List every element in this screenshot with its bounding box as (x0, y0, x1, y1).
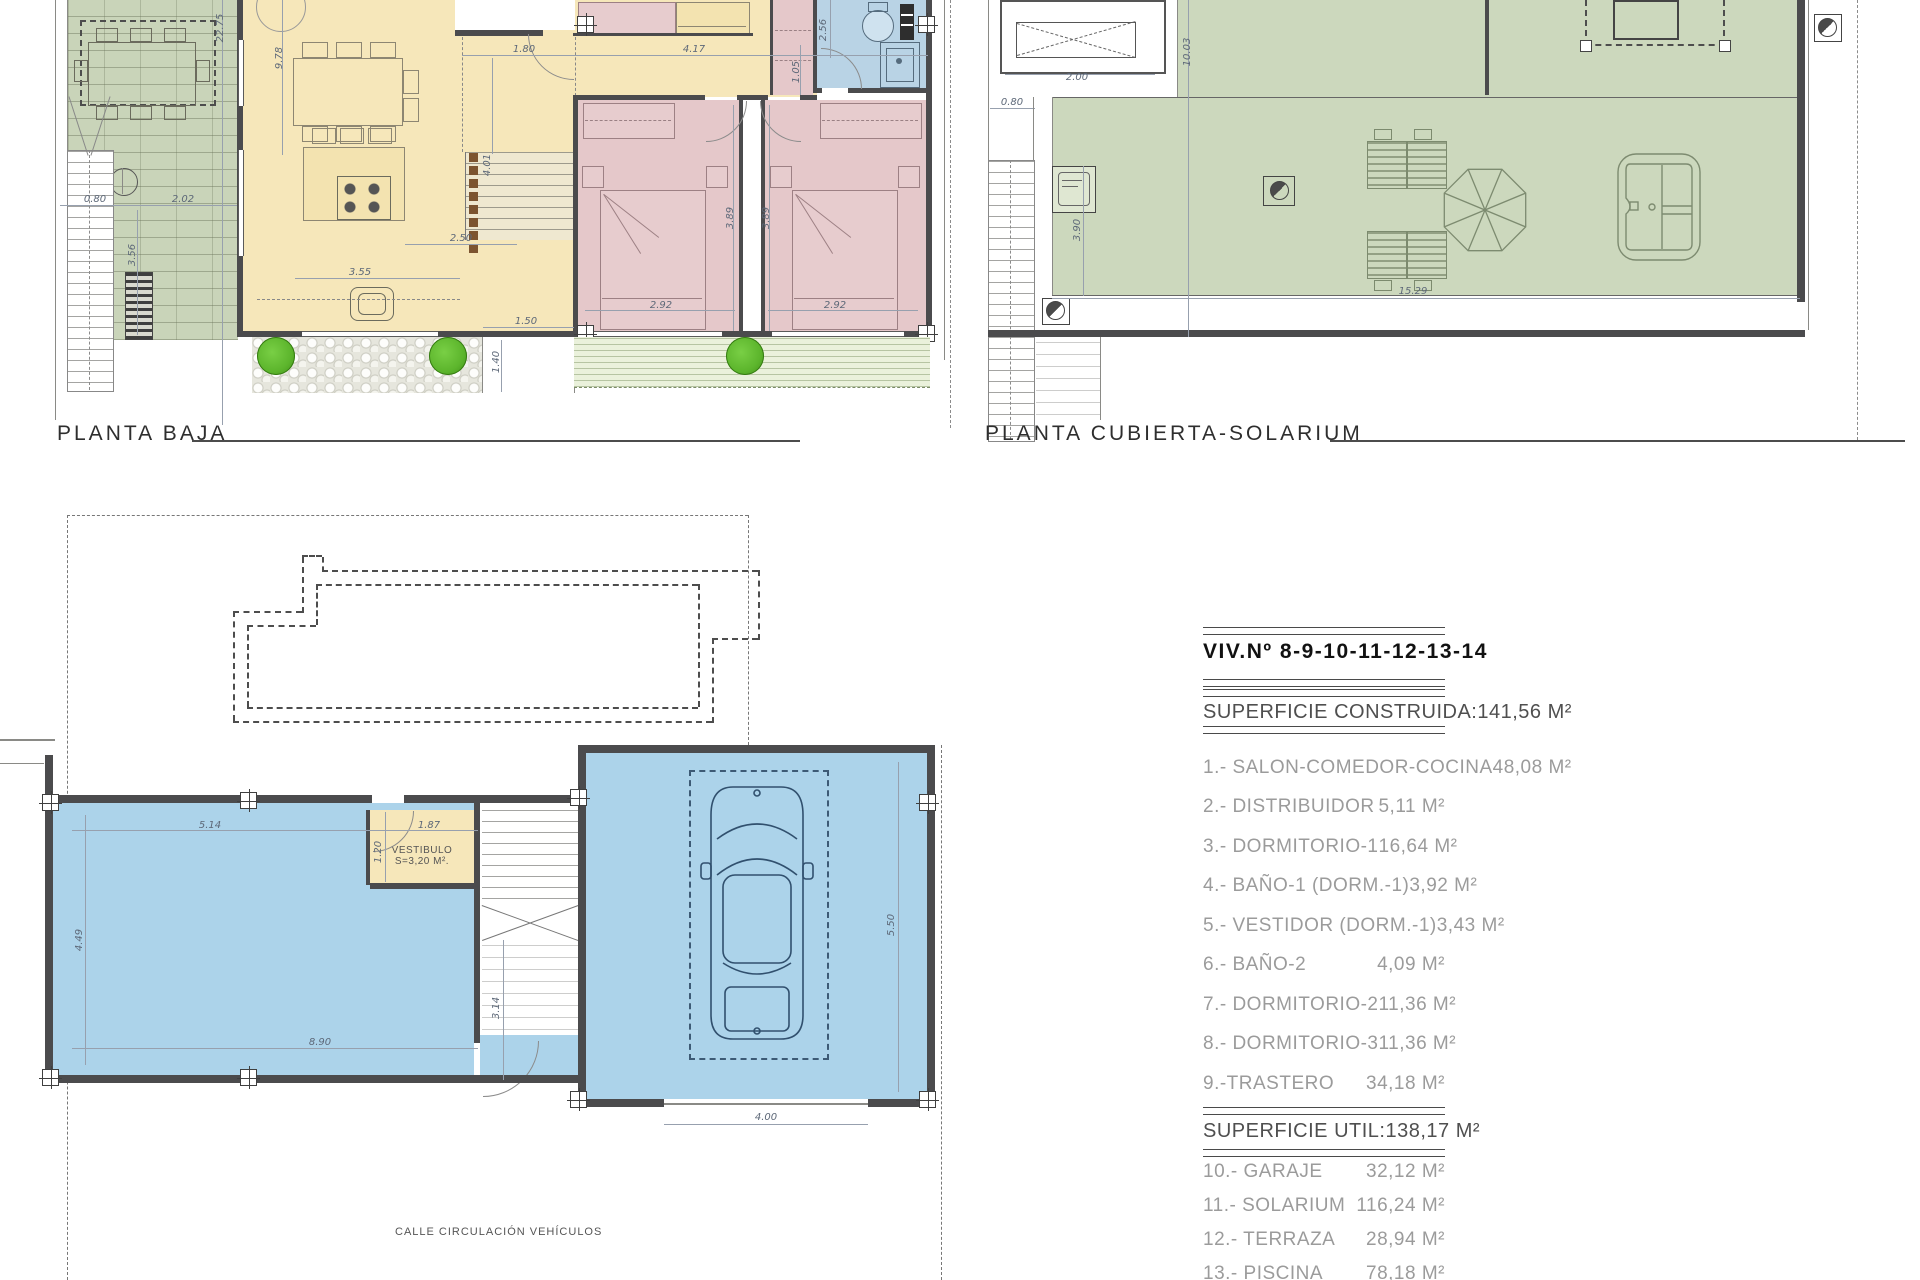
drawing-element (130, 28, 152, 42)
drawing-element (739, 100, 743, 331)
drawing-element (944, 0, 945, 360)
drawing-element (130, 106, 152, 120)
dimension-label: 15.29 (1399, 287, 1428, 297)
drawing-element (368, 128, 392, 144)
table-row: 13.- PISCINA78,18 M² (1203, 1257, 1445, 1280)
dimension-label: 0.80 (1001, 98, 1023, 108)
drawing-element (316, 584, 318, 625)
table-row: 3.- DORMITORIO-116,64 M² (1203, 827, 1445, 867)
drawing-element (1052, 298, 1800, 299)
drawing-element (582, 166, 604, 188)
drawing-element (678, 26, 746, 27)
drawing-element (1485, 0, 1489, 95)
drawing-element: 7.- DORMITORIO-2 (1203, 994, 1379, 1016)
drawing-element (1203, 689, 1445, 697)
toilet-icon (862, 10, 894, 42)
table-row: 6.- BAÑO-24,09 M² (1203, 946, 1445, 986)
drawing-element (164, 106, 186, 120)
drawing-element (723, 963, 791, 974)
drawing-element (898, 166, 920, 188)
drawing-element (503, 940, 504, 1080)
drawing-element (706, 166, 728, 188)
drawing-element (1580, 40, 1592, 52)
drawing-element (886, 48, 914, 82)
drawing-element (302, 42, 328, 58)
sun-lounger (1367, 141, 1407, 189)
car-icon (697, 779, 817, 1047)
drawing-element (366, 810, 370, 885)
drawing-element: 78,18 M² (1366, 1263, 1445, 1280)
drawing-element (1626, 164, 1692, 250)
stove-icon (337, 176, 391, 220)
drawing-element: 5.- VESTIDOR (DORM.-1) (1203, 915, 1437, 937)
drawing-element (469, 179, 478, 188)
plan-label-planta-baja: PLANTA BAJA (57, 422, 227, 446)
drawing-element: 9.-TRASTERO (1203, 1073, 1334, 1095)
drawing-element (322, 570, 758, 572)
drawing-element: 1.- SALON-COMEDOR-COCINA (1203, 757, 1493, 779)
drawing-element (316, 584, 698, 586)
drawing-element (336, 42, 362, 58)
drawing-element (340, 128, 364, 144)
table-row: 5.- VESTIDOR (DORM.-1)3,43 M² (1203, 906, 1445, 946)
table-row: 2.- DISTRIBUIDOR5,11 M² (1203, 788, 1445, 828)
drawing-element (574, 387, 930, 388)
drawing-element (312, 128, 336, 144)
drawing-element (462, 55, 928, 56)
drawing-element: VIV. (1203, 640, 1247, 664)
drawing-element (469, 218, 478, 227)
drawing-element (1010, 160, 1011, 440)
bush-icon (726, 337, 764, 375)
dimension-label: 3.89 (726, 207, 736, 229)
dimension-label: 5.14 (199, 821, 221, 831)
drawing-element: 12.- TERRAZA (1203, 1229, 1335, 1251)
closet (676, 2, 750, 34)
dimension-label: 2.00 (1066, 73, 1088, 83)
drawing-element (794, 298, 894, 299)
drawing-element (247, 707, 698, 709)
drawing-element (1374, 280, 1392, 291)
drawing-element (712, 638, 758, 640)
drawing-element (85, 815, 86, 1065)
dimension-label: 3.55 (349, 268, 371, 278)
drawing-element (570, 1091, 587, 1108)
drawing-element: 11.- SOLARIUM (1203, 1195, 1345, 1217)
drawing-element (813, 0, 817, 93)
drawing-element (483, 327, 574, 328)
drawing-element (585, 120, 671, 121)
bush-icon (429, 337, 467, 375)
drawing-element (1036, 342, 1100, 420)
table-row: 10.- GARAJE32,12 M² (1203, 1155, 1445, 1189)
drawing-element (196, 60, 210, 82)
drawing-element (918, 16, 935, 33)
drawing-element (403, 98, 419, 122)
table-rows-construida: 1.- SALON-COMEDOR-COCINA48,08 M²2.- DIST… (1203, 748, 1445, 1104)
drawing-element (901, 14, 913, 16)
drawing-element (725, 987, 789, 1031)
drawing-element (1203, 679, 1445, 687)
drawing-element (370, 42, 396, 58)
sun-lounger (1367, 231, 1407, 279)
drawing-element (1330, 440, 1905, 442)
dimension-label: 4.01 (483, 154, 493, 176)
drawing-element (950, 0, 951, 428)
drawing-element (238, 40, 244, 106)
drawing-element (717, 824, 797, 839)
drawing-element (0, 763, 44, 764)
drawing-element (240, 1069, 257, 1086)
drawing-element (1649, 204, 1655, 210)
drawing-element (238, 150, 244, 256)
drawing-element (469, 166, 478, 175)
architectural-plan-sheet: PLANTA BAJA PLANTA CUBIERTA-SOLARIUM VE (0, 0, 1920, 1280)
drawing-element: 3,43 M² (1437, 915, 1505, 937)
drawing-element: 32,12 M² (1366, 1161, 1445, 1183)
drawing-element (1374, 129, 1392, 140)
drawing-element (901, 24, 913, 26)
drawing-element (233, 611, 302, 613)
drawing-element (233, 611, 235, 721)
table-row: 1.- SALON-COMEDOR-COCINA48,08 M² (1203, 748, 1445, 788)
drawing-element (247, 625, 249, 707)
drawing-element (247, 625, 316, 627)
drawing-element (830, 0, 831, 58)
table-title: VIV. Nº 8-9-10-11-12-13-14 (1203, 640, 1445, 664)
bath-shelf (900, 4, 914, 40)
table-row: 7.- DORMITORIO-211,36 M² (1203, 985, 1445, 1025)
drawing-element: SUPERFICIE UTIL: (1203, 1120, 1385, 1143)
drawing-element: 48,08 M² (1493, 757, 1572, 779)
drawing-element (45, 795, 372, 803)
table-row: 8.- DORMITORIO-311,36 M² (1203, 1025, 1445, 1065)
drawing-element (570, 789, 587, 806)
table-rows-util: 10.- GARAJE32,12 M²11.- SOLARIUM116,24 M… (1203, 1155, 1445, 1280)
dimension-label: 1.87 (418, 821, 440, 831)
closet (583, 103, 675, 139)
drawing-element (192, 440, 800, 442)
drawing-element (482, 337, 483, 393)
drawing-element (941, 745, 942, 1280)
drawing-element (573, 33, 753, 36)
drawing-element (1719, 40, 1731, 52)
drawing-element (1062, 180, 1082, 181)
drawing-element (405, 244, 517, 245)
table-row: 4.- BAÑO-1 (DORM.-1)3,92 M² (1203, 867, 1445, 907)
drawing-element (800, 95, 817, 100)
drawing-element (385, 812, 386, 882)
dimension-label: 4.17 (683, 45, 705, 55)
dimension-label: 3.90 (1073, 219, 1083, 241)
drawing-element (469, 244, 478, 253)
drawing-element (72, 1048, 478, 1049)
drawing-element: 13.- PISCINA (1203, 1263, 1323, 1280)
drawing-element: Nº 8-9-10-11-12-13-14 (1247, 640, 1488, 664)
dimension-label: 4.49 (75, 929, 85, 951)
drawing-element (775, 30, 811, 31)
drawing-element (748, 515, 749, 745)
drawing-element (282, 0, 283, 155)
drawing-element: 8.- DORMITORIO-3 (1203, 1033, 1379, 1055)
drawing-element (926, 0, 932, 337)
drawing-element (1444, 169, 1525, 250)
dimension-label: 1.50 (515, 317, 537, 327)
drawing-element (712, 638, 714, 723)
drawing-element (60, 205, 237, 206)
drawing-element (717, 859, 797, 875)
drawing-element (1808, 0, 1809, 330)
drawing-element: 141,56 M² (1477, 701, 1572, 724)
drawing-element: 4,09 M² (1377, 954, 1445, 976)
drawing-element (1062, 186, 1078, 187)
dimension-label: 1.80 (513, 45, 535, 55)
drawing-element (1203, 627, 1445, 635)
drawing-element (1270, 181, 1289, 200)
table-row: 12.- TERRAZA28,94 M² (1203, 1223, 1445, 1257)
drawing-element (240, 792, 257, 809)
dimension-label: 1.20 (374, 841, 384, 863)
drawing-element (573, 95, 705, 100)
dimension-label: 9.78 (275, 47, 285, 69)
dimension-label: 1.40 (492, 351, 502, 373)
drawing-element (403, 70, 419, 94)
dimension-label: 2.92 (824, 301, 846, 311)
drawing-element (1630, 202, 1638, 210)
drawing-element: 11,36 M² (1379, 994, 1457, 1016)
drawing-element: 11,36 M² (1379, 1033, 1457, 1055)
garden-drain-icon (110, 168, 138, 196)
drawing-element (0, 739, 55, 741)
drawing-element (586, 745, 935, 753)
dining-table (293, 58, 403, 126)
drawing-element (122, 168, 123, 194)
drawing-element: 3,92 M² (1409, 875, 1477, 897)
dimension-label: 3.14 (492, 997, 502, 1019)
drawing-element (803, 863, 813, 879)
garden-steps (125, 272, 153, 340)
drawing-element (758, 570, 760, 640)
drawing-element (96, 28, 118, 42)
table-row: 9.-TRASTERO34,18 M² (1203, 1064, 1445, 1104)
drawing-element (42, 794, 59, 811)
drawing-element (96, 106, 118, 120)
basement-stairs (482, 810, 578, 905)
drawing-element (896, 58, 902, 64)
drawing-element: 6.- BAÑO-2 (1203, 954, 1306, 976)
surface-area-table: VIV. Nº 8-9-10-11-12-13-14 SUPERFICIE CO… (1203, 618, 1445, 1280)
table-row: 11.- SOLARIUM116,24 M² (1203, 1189, 1445, 1223)
drawing-element (469, 192, 478, 201)
dimension-label: 5.50 (887, 914, 897, 936)
drawing-element (302, 555, 322, 557)
roof-stairs (988, 160, 1035, 442)
drawing-element (664, 1103, 868, 1105)
drawing-element (45, 1075, 578, 1083)
dimension-label: 2.50 (450, 234, 472, 244)
dimension-label: 2.02 (172, 195, 194, 205)
dimension-label: 1.05 (792, 61, 802, 83)
dimension-label: 22.75 (216, 14, 226, 43)
closet (820, 103, 922, 139)
jacuzzi-icon (1616, 152, 1702, 262)
dimension-label: 4.00 (755, 1113, 777, 1123)
drawing-element (988, 330, 1805, 337)
drawing-element (770, 166, 792, 188)
dimension-label: 3.56 (128, 244, 138, 266)
drawing-element: 5,11 M² (1378, 796, 1445, 818)
garden-table (88, 42, 196, 106)
drawing-element (664, 1124, 868, 1125)
drawing-element (257, 299, 460, 300)
drawing-element (822, 120, 918, 121)
drawing-element (358, 293, 386, 315)
drawing-element (1052, 97, 1800, 98)
drawing-element: SUPERFICIE CONSTRUIDA: (1203, 701, 1477, 724)
drawing-element (469, 205, 478, 214)
drawing-element: 28,94 M² (1366, 1229, 1445, 1251)
drawing-element (42, 1069, 59, 1086)
parasol-icon (1439, 164, 1531, 256)
drawing-element (455, 0, 575, 30)
drawing-element (754, 790, 760, 796)
drawing-element (137, 210, 138, 335)
drawing-element (164, 28, 186, 42)
drawing-element (233, 721, 712, 723)
drawing-element (55, 0, 56, 420)
drawing-element: 2.- DISTRIBUIDOR (1203, 796, 1375, 818)
dimension-label: 10.03 (1183, 38, 1193, 67)
drawing-element (67, 515, 748, 516)
drawing-element (698, 584, 700, 707)
drawing-element (404, 795, 578, 803)
dimension-label: 8.90 (309, 1038, 331, 1048)
drawing-element: 116,24 M² (1356, 1195, 1445, 1217)
drawing-element (370, 883, 480, 889)
drawing-element (919, 1091, 936, 1108)
drawing-element (1083, 166, 1084, 296)
drawing-element (302, 557, 304, 613)
drawing-element (1818, 18, 1837, 37)
drawing-element (474, 803, 480, 1043)
drawing-element (1414, 129, 1432, 140)
drawing-element (1058, 172, 1090, 206)
drawing-element (1177, 0, 1178, 97)
drawing-element (919, 794, 936, 811)
drawing-element (89, 150, 90, 390)
drawing-element (1046, 301, 1065, 320)
drawing-element (295, 278, 460, 279)
drawing-element (222, 0, 223, 425)
drawing-element: 16,64 M² (1379, 836, 1458, 858)
drawing-element (586, 1099, 664, 1107)
drawing-element (469, 153, 478, 162)
drawing-element (577, 16, 594, 33)
drawing-element (701, 787, 813, 1039)
exterior-stair (67, 150, 114, 392)
drawing-element (701, 863, 711, 879)
drawing-element (573, 95, 578, 337)
drawing-element (868, 2, 888, 12)
drawing-element (1857, 0, 1858, 440)
plan-label-cubierta: PLANTA CUBIERTA-SOLARIUM (985, 422, 1363, 446)
table-section-header: SUPERFICIE CONSTRUIDA: 141,56 M² (1203, 698, 1445, 726)
drawing-element (1797, 0, 1805, 302)
drawing-element (1203, 1107, 1445, 1115)
drawing-element: 4.- BAÑO-1 (DORM.-1) (1203, 875, 1409, 897)
drawing-element (1100, 337, 1101, 420)
bush-icon (257, 337, 295, 375)
drawing-element (602, 298, 702, 299)
drawing-element (770, 0, 773, 95)
dimension-label: 2.92 (650, 301, 672, 311)
drawing-element (898, 762, 899, 1092)
roof-hatch (1613, 0, 1679, 40)
drawing-element: 3.- DORMITORIO-1 (1203, 836, 1379, 858)
drawing-element: 138,17 M² (1385, 1120, 1480, 1143)
dimension-label: 0.80 (84, 195, 106, 205)
drawing-element (482, 945, 578, 1040)
table-section-header: SUPERFICIE UTIL: 138,17 M² (1203, 1115, 1445, 1147)
drawing-element (492, 58, 493, 154)
dimension-label: 3.89 (762, 207, 772, 229)
drawing-element (1618, 154, 1700, 260)
drawing-element (74, 60, 88, 82)
drawing-element (723, 875, 791, 963)
drawing-element (990, 108, 1035, 109)
drawing-element (1203, 726, 1445, 734)
drawing-element: 10.- GARAJE (1203, 1161, 1323, 1183)
drawing-element: 34,18 M² (1366, 1073, 1445, 1095)
dimension-label: 2.56 (819, 19, 829, 41)
drawing-element (1585, 44, 1725, 46)
street-label: CALLE CIRCULACIÓN VEHÍCULOS (395, 1226, 602, 1238)
